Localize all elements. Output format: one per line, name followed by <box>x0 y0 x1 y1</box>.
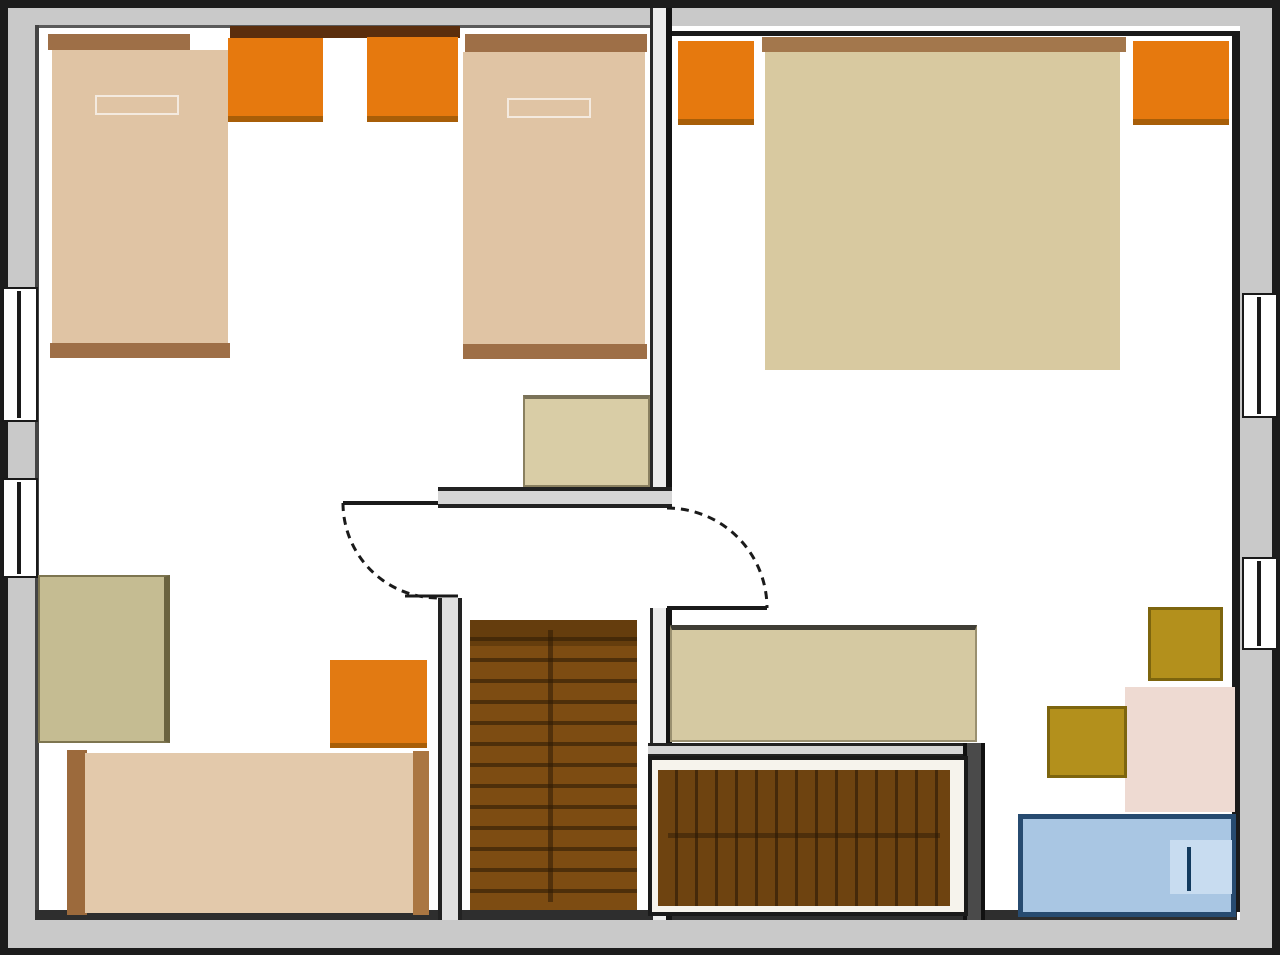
staircase-upper-top-shade <box>470 620 637 646</box>
window-left-upper-glass <box>17 291 21 418</box>
nightstand-4 <box>1133 41 1229 125</box>
staircase-lower-flight <box>658 770 950 906</box>
top-wall-outer-edge <box>0 0 1280 8</box>
double-bed-headboard <box>762 37 1126 52</box>
divider-wall-upper <box>650 8 672 505</box>
lower-stairs-north-wall <box>648 743 985 757</box>
top-wall <box>8 8 1272 26</box>
window-right-lower-glass <box>1257 561 1261 646</box>
window-right-upper-glass <box>1257 297 1261 414</box>
window-left-lower-glass <box>17 482 21 574</box>
staircase-lower-grain <box>668 833 940 838</box>
sideboard-right <box>670 625 977 742</box>
single-bed-1-footboard <box>50 343 230 358</box>
staircase-upper-grain <box>548 630 553 902</box>
nightstand-1 <box>228 38 323 122</box>
single-bed-2-pillow <box>507 98 591 118</box>
single-bed-2 <box>463 52 645 346</box>
bathtub-fitting <box>1187 847 1191 891</box>
chest-of-drawers <box>523 395 650 487</box>
nightstand-2 <box>367 37 458 122</box>
stool-2 <box>1047 706 1127 778</box>
floor-plan <box>0 0 1280 960</box>
stair-enclosure-north-wall <box>438 487 672 508</box>
single-bed-3 <box>85 753 415 913</box>
single-bed-1-pillow <box>95 95 179 115</box>
double-bed <box>765 52 1120 370</box>
bottom-wall <box>8 920 1272 948</box>
cabinet-orange <box>330 660 427 748</box>
right-wall-outer-edge <box>1272 0 1280 955</box>
desk-left <box>38 575 170 743</box>
right-wall <box>1240 8 1272 948</box>
stair-enclosure-west-wall-lower <box>438 598 462 920</box>
right-room-top-edge-line <box>666 31 1240 36</box>
stool-1 <box>1148 607 1223 681</box>
side-table-pink <box>1125 687 1235 812</box>
single-bed-3-headboard <box>67 750 87 915</box>
left-wall-inner-edge-line <box>35 25 39 912</box>
staircase-upper-flight <box>470 620 637 910</box>
single-bed-3-footboard <box>413 751 429 915</box>
nightstand-3 <box>678 41 754 125</box>
single-bed-2-footboard <box>463 344 647 359</box>
single-bed-2-headboard <box>465 34 647 52</box>
bathtub-step <box>1170 840 1232 894</box>
bottom-wall-outer-edge <box>0 948 1280 955</box>
single-bed-1-headboard <box>48 34 190 50</box>
